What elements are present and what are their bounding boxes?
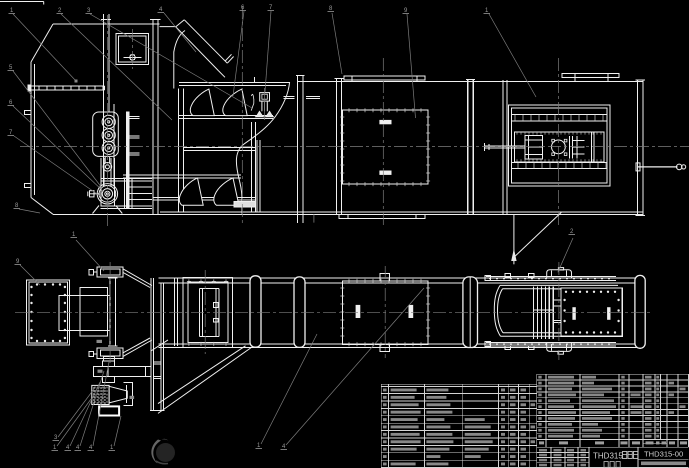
svg-text:THD315-00: THD315-00	[644, 450, 683, 459]
svg-text:THD315: THD315	[593, 452, 623, 461]
